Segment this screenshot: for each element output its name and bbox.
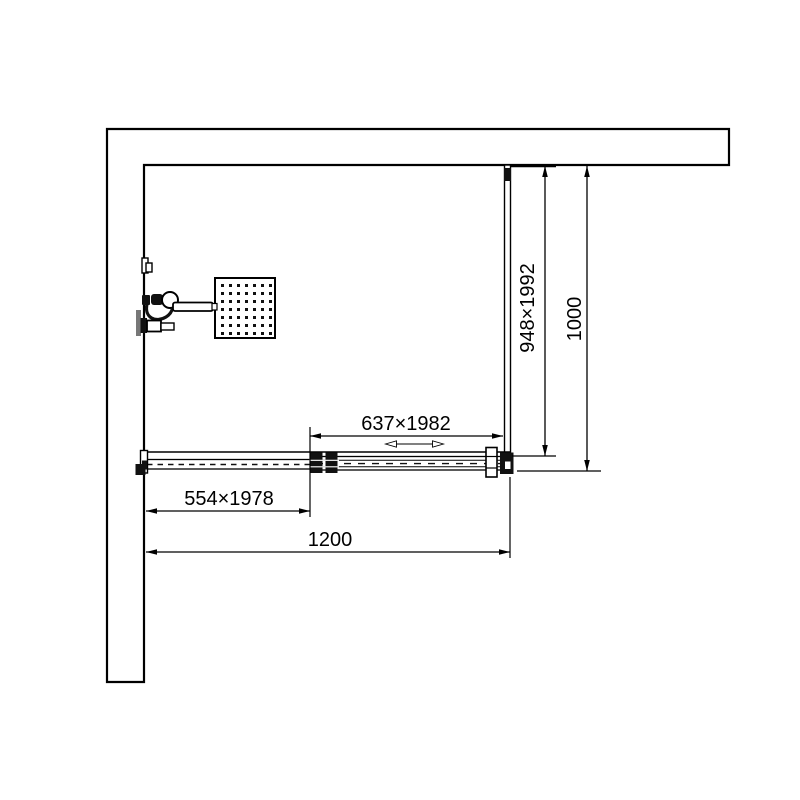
spout-base: [141, 318, 148, 333]
dimension-label: 637×1982: [361, 413, 451, 435]
dimension-label: 554×1978: [184, 488, 274, 510]
arrowhead-down-icon: [542, 445, 548, 456]
side-glass-top-bracket: [504, 168, 511, 181]
valve-lever-tip: [212, 304, 217, 311]
dimension-fixed-panel: 554×1978: [146, 488, 310, 514]
roller-block-1: [311, 453, 323, 474]
valve-body: [142, 295, 150, 305]
arrowhead-left-icon: [310, 433, 321, 439]
wall-bracket-icon: [142, 258, 152, 273]
slide-direction-arrow-icon: [386, 441, 444, 447]
shower-enclosure-plan-drawing: 637×1982 554×1978 1200 948×1992 1: [0, 0, 800, 800]
wall-profile-foot: [136, 464, 146, 475]
door-assembly: [136, 448, 514, 478]
arrowhead-left-icon: [146, 508, 157, 514]
shower-head-icon: [215, 278, 275, 338]
valve-recess: [136, 310, 141, 336]
walls: [107, 129, 729, 682]
side-glass: [505, 165, 511, 455]
roller-bracket-right: [486, 448, 497, 478]
roller-block-2: [326, 453, 338, 474]
bracket-knob: [146, 263, 152, 272]
slide-arrow-head-right: [433, 441, 444, 447]
corner-post: [500, 453, 514, 475]
arrowhead-left-icon: [146, 549, 157, 555]
dimension-label: 1200: [308, 529, 353, 551]
side-glass-panel: [504, 165, 511, 455]
spout-body: [147, 321, 161, 332]
arrowhead-down-icon: [584, 460, 590, 471]
corner-post-hole: [505, 462, 511, 470]
dimension-label: 1000: [564, 297, 586, 342]
shower-valve-icon: [136, 292, 217, 336]
valve-lever: [173, 303, 213, 312]
wall-outline: [107, 129, 729, 682]
slide-arrow-head-left: [386, 441, 397, 447]
arrowhead-up-icon: [584, 166, 590, 177]
dimension-side-panel: 948×1992: [511, 166, 556, 456]
arrowhead-right-icon: [499, 549, 510, 555]
arrowhead-right-icon: [299, 508, 310, 514]
dimension-label: 948×1992: [517, 263, 539, 353]
arrowhead-right-icon: [492, 433, 503, 439]
spout-nose: [161, 323, 174, 330]
technical-drawing-page: 637×1982 554×1978 1200 948×1992 1: [0, 0, 800, 800]
arrowhead-up-icon: [542, 166, 548, 177]
shower-head-nozzles: [219, 282, 272, 335]
fixed-glass-panel: [136, 451, 331, 476]
